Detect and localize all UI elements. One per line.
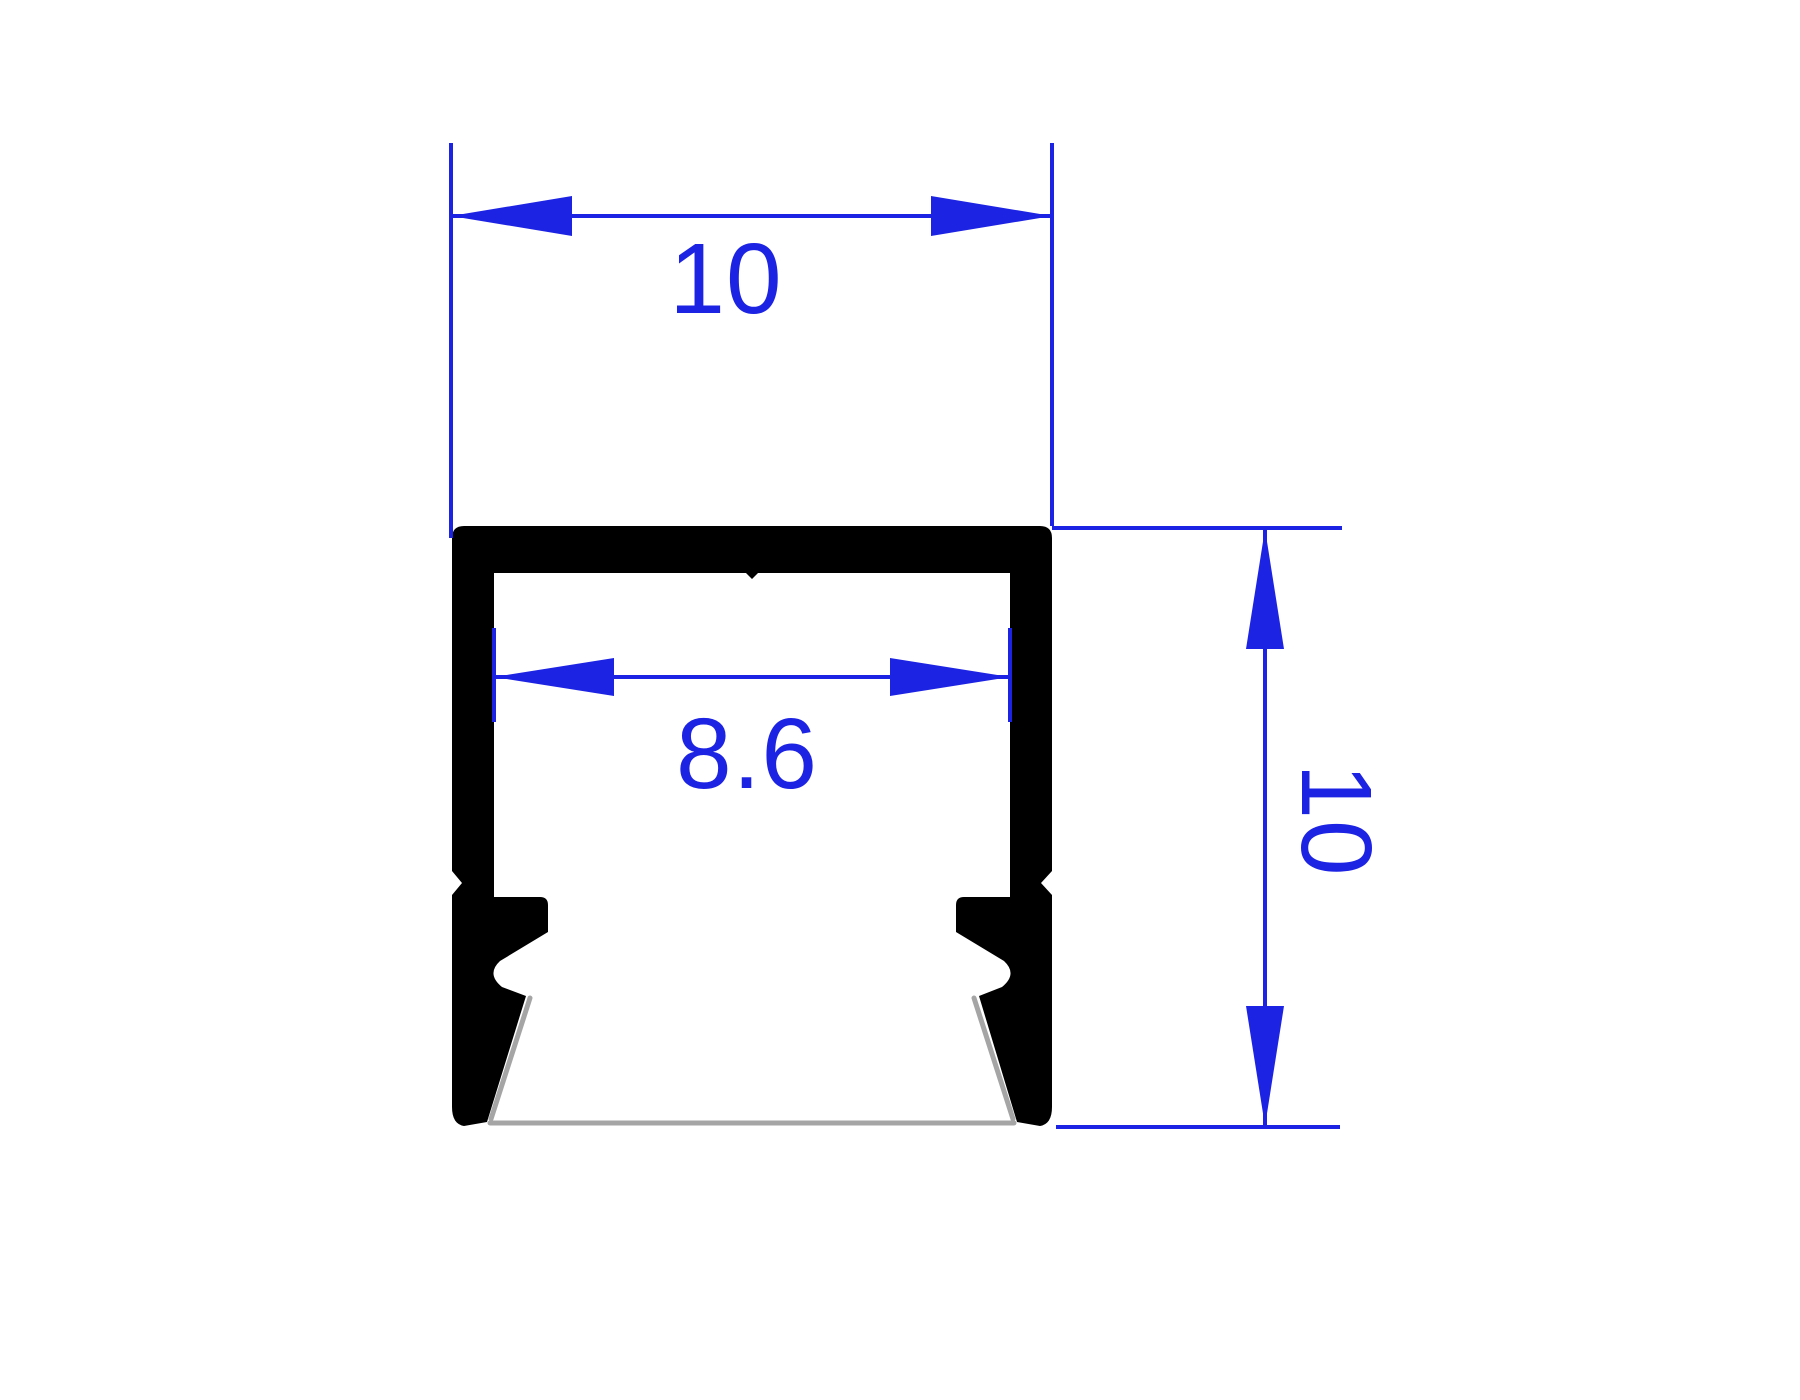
- dimension-value-side-height: 10: [1280, 763, 1392, 876]
- drawing-background: [0, 0, 1800, 1400]
- dimension-value-inner-width: 8.6: [676, 698, 818, 810]
- dimension-value-top-width: 10: [669, 223, 782, 335]
- technical-drawing-canvas: 10 8.6 10: [0, 0, 1800, 1400]
- drawing-page: 10 8.6 10: [0, 0, 1800, 1400]
